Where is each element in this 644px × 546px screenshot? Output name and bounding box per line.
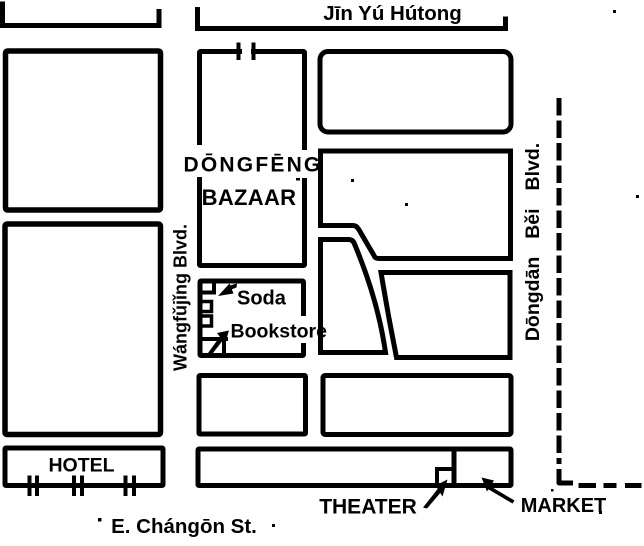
svg-text:Jīn Yú Hútong: Jīn Yú Hútong <box>323 2 462 25</box>
svg-text:Wángfǔjǐng Blvd.: Wángfǔjǐng Blvd. <box>171 224 191 371</box>
svg-text:DŌNGFĒNG: DŌNGFĒNG <box>184 154 323 177</box>
svg-text:THEATER: THEATER <box>319 496 417 519</box>
svg-text:Soda: Soda <box>237 288 287 310</box>
svg-text:BAZAAR: BAZAAR <box>202 185 297 210</box>
svg-text:MARKET: MARKET <box>521 495 607 517</box>
svg-text:Dōngdān Běi Blvd.: Dōngdān Běi Blvd. <box>522 143 544 341</box>
svg-text:HOTEL: HOTEL <box>48 455 114 477</box>
svg-text:E. Chángōn St.: E. Chángōn St. <box>111 515 257 538</box>
svg-text:Bookstore: Bookstore <box>231 321 328 343</box>
